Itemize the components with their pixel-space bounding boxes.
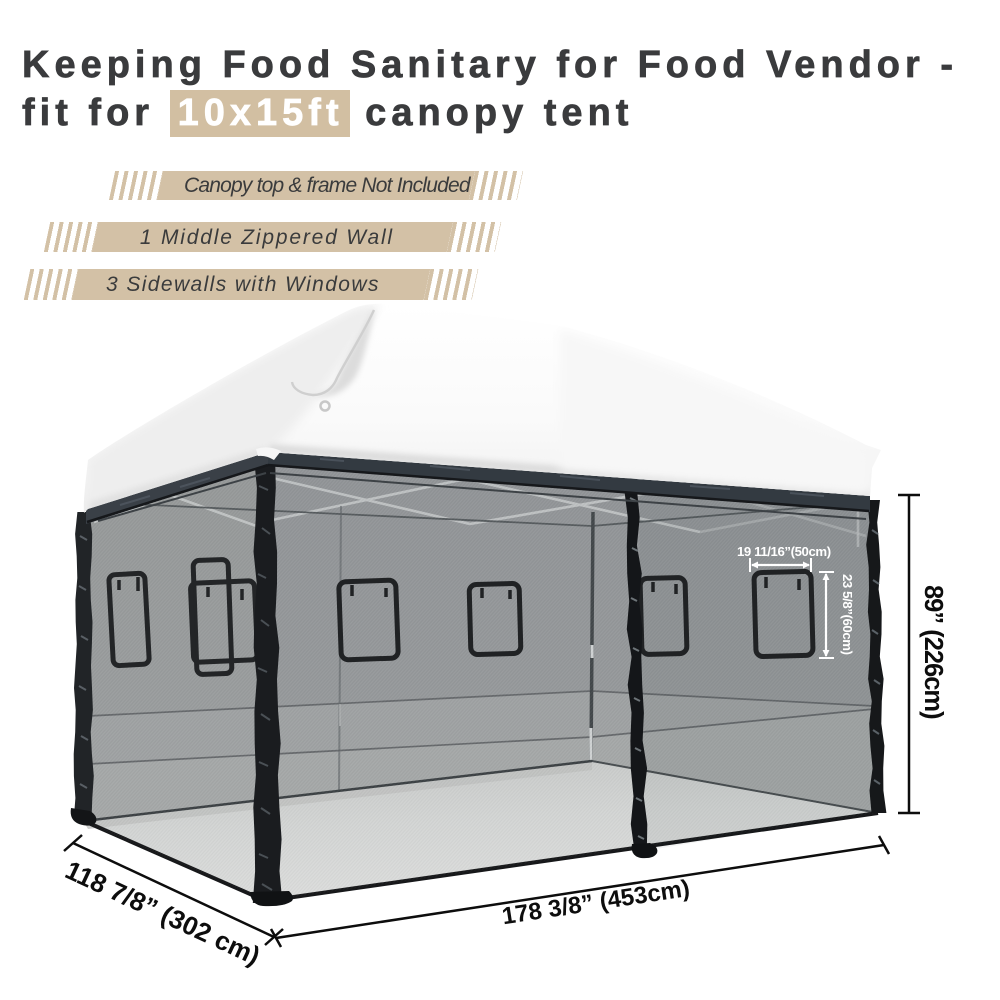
svg-text:178 3/8” (453cm): 178 3/8” (453cm) <box>500 875 691 930</box>
svg-text:89” (226cm): 89” (226cm) <box>919 585 947 719</box>
svg-text:23 5/8”(60cm): 23 5/8”(60cm) <box>840 574 855 655</box>
svg-text:19 11/16”(50cm): 19 11/16”(50cm) <box>737 544 831 559</box>
